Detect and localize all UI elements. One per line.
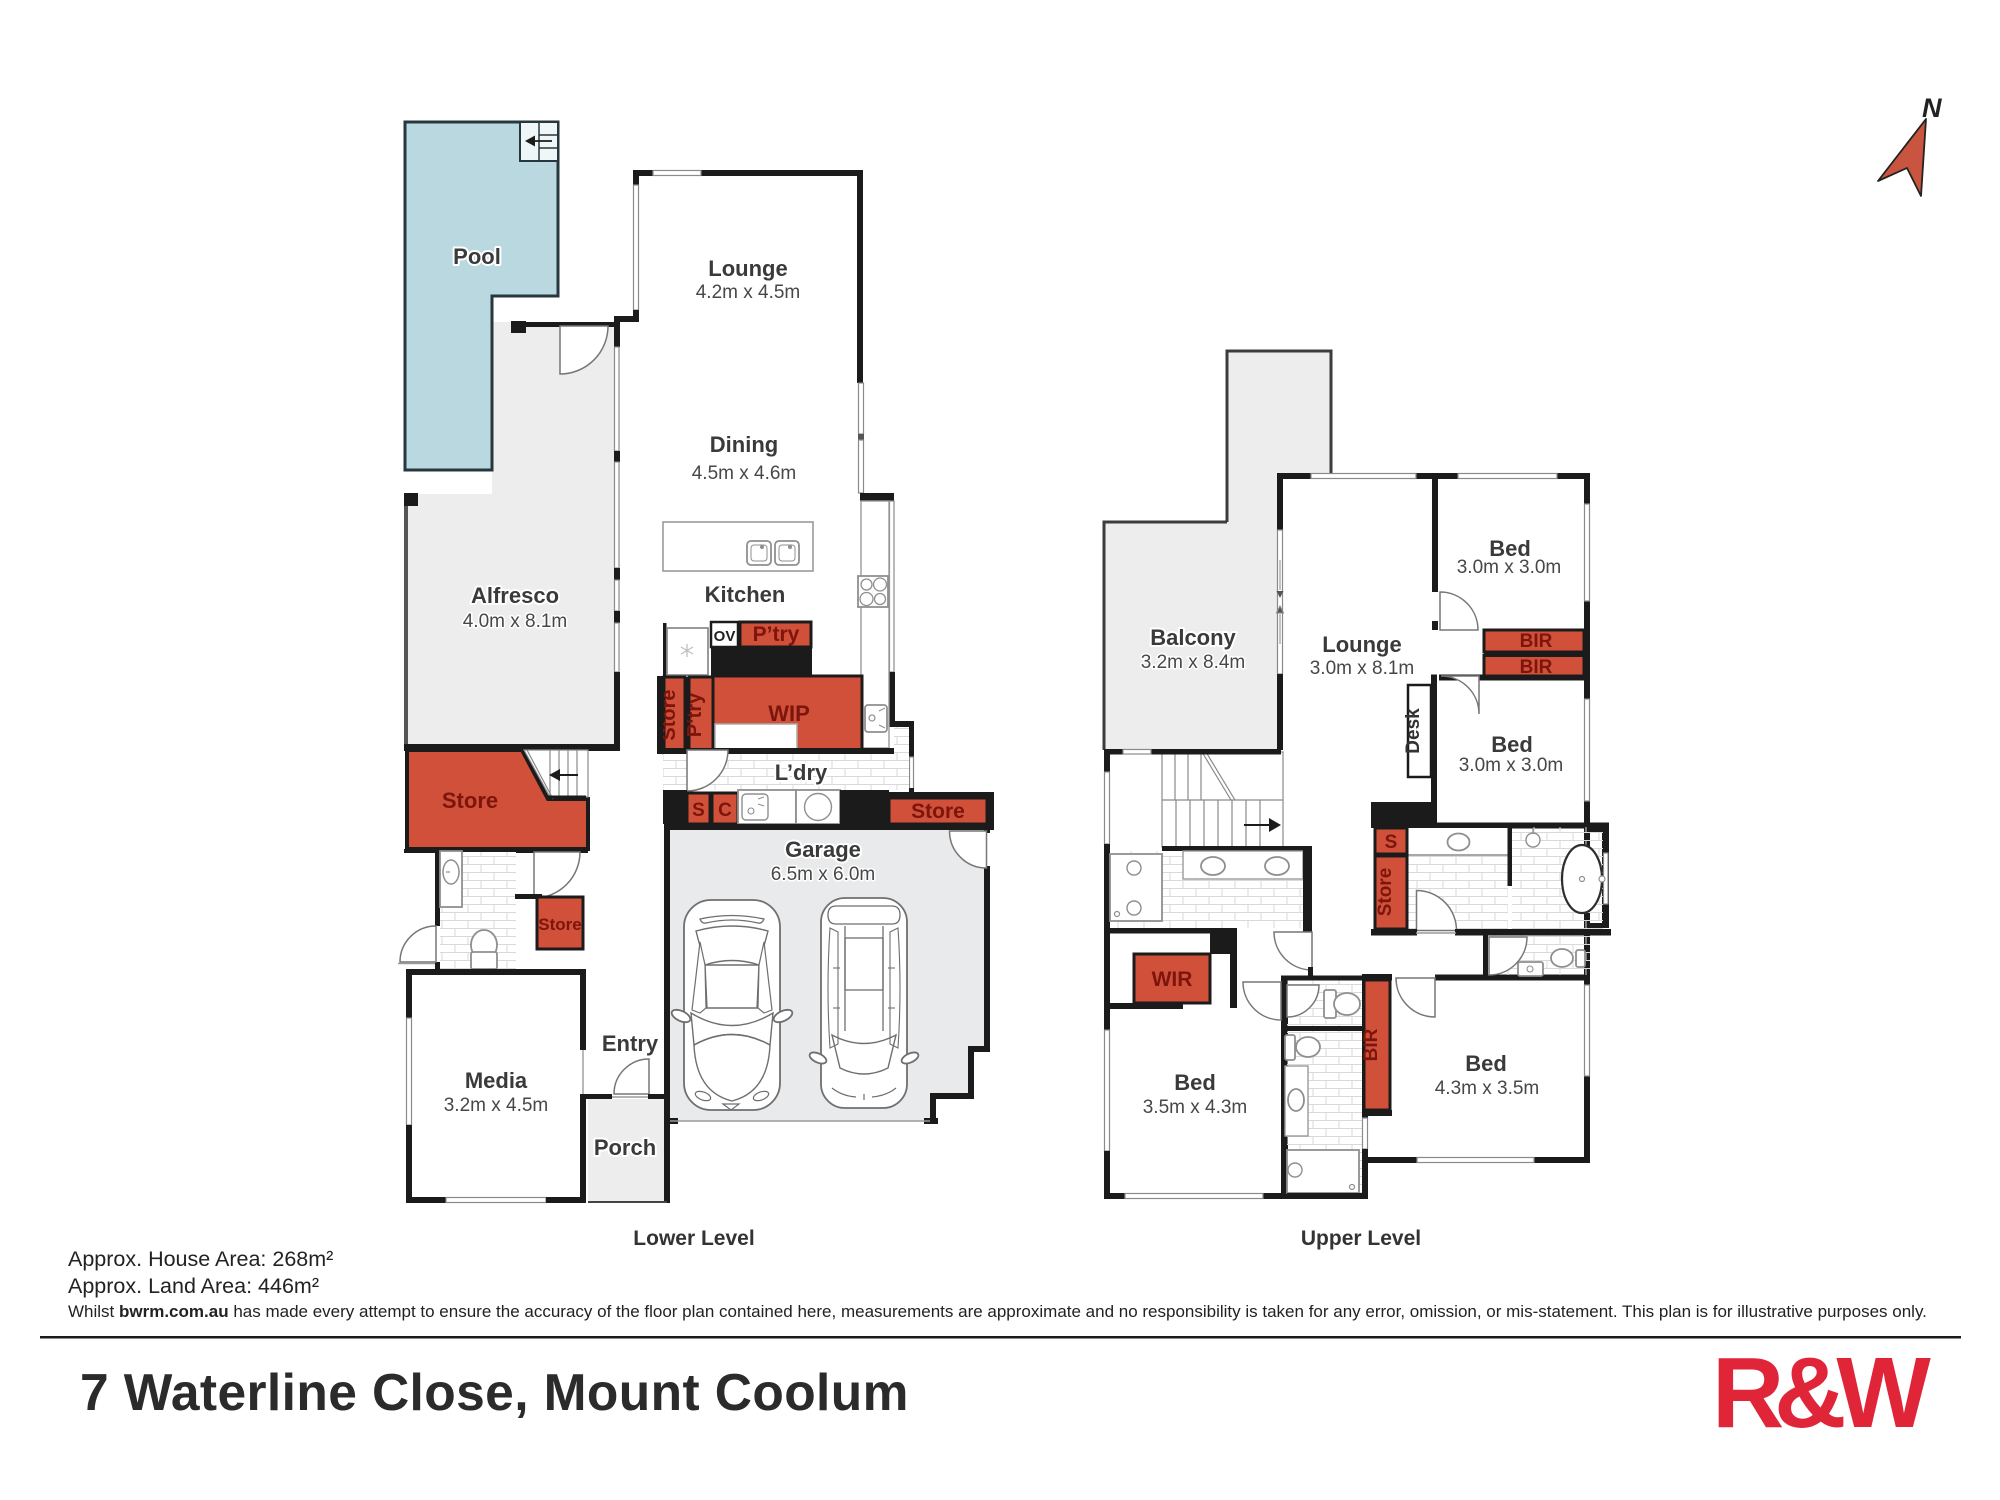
svg-text:Lounge: Lounge — [1322, 632, 1401, 657]
svg-text:3.0m x 3.0m: 3.0m x 3.0m — [1457, 557, 1562, 578]
svg-text:Bed: Bed — [1491, 732, 1533, 757]
svg-text:WIR: WIR — [1152, 968, 1193, 991]
svg-text:Porch: Porch — [594, 1135, 656, 1160]
svg-text:Whilst bwrm.com.au has made ev: Whilst bwrm.com.au has made every attemp… — [68, 1302, 1927, 1321]
svg-text:3.0m x 8.1m: 3.0m x 8.1m — [1310, 658, 1415, 679]
svg-text:4.3m x 3.5m: 4.3m x 3.5m — [1435, 1078, 1540, 1099]
svg-text:3.5m x 4.3m: 3.5m x 4.3m — [1143, 1097, 1248, 1118]
svg-text:Alfresco: Alfresco — [471, 583, 559, 608]
svg-text:3.2m x 8.4m: 3.2m x 8.4m — [1141, 652, 1246, 673]
svg-text:Dining: Dining — [710, 432, 778, 457]
svg-text:P‘try: P‘try — [684, 692, 706, 737]
svg-text:Store: Store — [442, 788, 498, 813]
svg-text:3.0m x 3.0m: 3.0m x 3.0m — [1459, 755, 1564, 776]
svg-text:OV: OV — [714, 628, 736, 645]
svg-text:Garage: Garage — [785, 837, 861, 862]
svg-text:6.5m x 6.0m: 6.5m x 6.0m — [771, 864, 876, 885]
svg-text:4.0m x 8.1m: 4.0m x 8.1m — [463, 611, 568, 632]
svg-text:Upper Level: Upper Level — [1301, 1227, 1421, 1250]
svg-text:Lower Level: Lower Level — [633, 1227, 754, 1250]
svg-text:Pool: Pool — [453, 244, 501, 269]
svg-text:Balcony: Balcony — [1150, 625, 1236, 650]
svg-text:BIR: BIR — [1361, 1028, 1382, 1061]
svg-text:Entry: Entry — [602, 1031, 659, 1056]
svg-text:7 Waterline Close, Mount Coolu: 7 Waterline Close, Mount Coolum — [80, 1363, 909, 1421]
svg-text:Bed: Bed — [1465, 1051, 1507, 1076]
svg-text:WIP: WIP — [768, 701, 810, 726]
svg-text:Approx. House Area: 268m²: Approx. House Area: 268m² — [68, 1247, 333, 1271]
svg-text:L’dry: L’dry — [775, 760, 828, 785]
svg-text:3.2m x 4.5m: 3.2m x 4.5m — [444, 1095, 549, 1116]
svg-text:Approx. Land Area: 446m²: Approx. Land Area: 446m² — [68, 1274, 319, 1298]
svg-text:N: N — [1922, 93, 1942, 123]
svg-text:4.2m x 4.5m: 4.2m x 4.5m — [696, 282, 801, 303]
svg-text:Kitchen: Kitchen — [705, 582, 786, 607]
svg-text:P’try: P’try — [753, 623, 800, 646]
svg-text:Store: Store — [538, 915, 581, 934]
svg-text:Store: Store — [911, 800, 965, 823]
svg-text:Store: Store — [1375, 868, 1396, 917]
svg-text:4.5m x 4.6m: 4.5m x 4.6m — [692, 463, 797, 484]
svg-text:Desk: Desk — [1403, 708, 1424, 754]
svg-text:R&W: R&W — [1712, 1337, 1931, 1449]
svg-text:Bed: Bed — [1174, 1070, 1216, 1095]
svg-text:S: S — [1385, 832, 1398, 853]
svg-text:S: S — [692, 800, 705, 821]
svg-text:Media: Media — [465, 1068, 528, 1093]
svg-text:BIR: BIR — [1520, 631, 1553, 652]
svg-text:C: C — [718, 800, 732, 821]
svg-text:Lounge: Lounge — [708, 256, 787, 281]
